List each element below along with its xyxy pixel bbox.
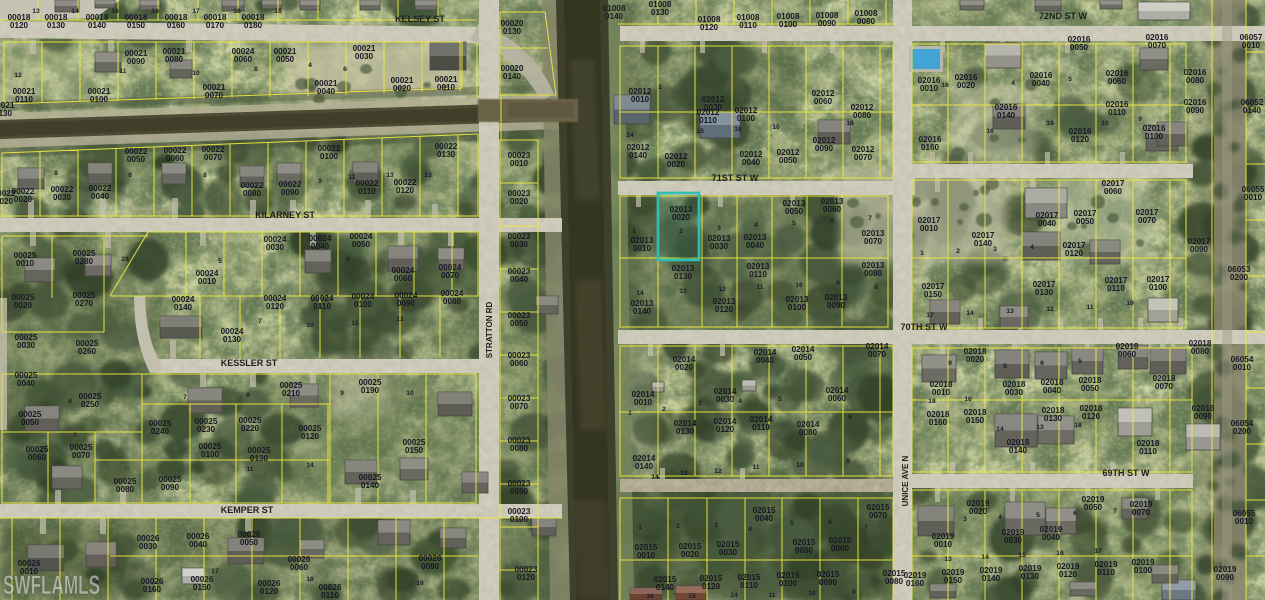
svg-text:020160160: 020160160 [919,135,942,152]
svg-text:020150100: 020150100 [777,571,800,588]
svg-text:020140110: 020140110 [750,415,773,432]
svg-text:10: 10 [772,124,780,131]
svg-text:1: 1 [638,524,642,531]
svg-text:020130010: 020130010 [631,236,654,253]
svg-text:000250120: 000250120 [299,424,322,441]
svg-text:020120100: 020120100 [735,106,758,123]
svg-text:8: 8 [1003,363,1007,370]
svg-text:000250130: 000250130 [248,446,271,463]
svg-text:020170130: 020170130 [1033,280,1056,297]
svg-text:000260160: 000260160 [141,577,164,594]
svg-text:12: 12 [718,286,726,293]
svg-text:020180050: 020180050 [1079,376,1102,393]
svg-text:2: 2 [956,248,960,255]
svg-text:000210050: 000210050 [274,47,297,64]
svg-text:18: 18 [1046,120,1054,127]
svg-text:2: 2 [662,406,666,413]
svg-text:000240060: 000240060 [392,266,415,283]
svg-text:020130060: 020130060 [821,197,844,214]
svg-text:020160100: 020160100 [1143,124,1166,141]
svg-text:71ST ST W: 71ST ST W [712,173,759,183]
svg-text:000250050: 000250050 [19,410,42,427]
svg-text:7: 7 [868,215,872,222]
svg-text:8: 8 [254,66,258,73]
svg-text:14: 14 [996,426,1004,433]
svg-text:020190050: 020190050 [1082,495,1105,512]
svg-text:5: 5 [1078,358,1082,365]
svg-text:000230060: 000230060 [508,351,531,368]
svg-text:000220050: 000220050 [125,147,148,164]
svg-text:020130110: 020130110 [747,262,770,279]
svg-text:020190110: 020190110 [1095,560,1118,577]
svg-text:020190040: 020190040 [1040,525,1063,542]
svg-text:18: 18 [416,580,424,587]
svg-text:020190030: 020190030 [1002,528,1025,545]
svg-text:020140120: 020140120 [714,417,737,434]
svg-text:020170010: 020170010 [918,216,941,233]
svg-text:13: 13 [1006,308,1014,315]
svg-text:000220090: 000220090 [279,180,302,197]
svg-text:020180040: 020180040 [1041,378,1064,395]
svg-text:000210010: 000210010 [435,75,458,92]
svg-text:72ND ST W: 72ND ST W [1039,11,1088,21]
svg-text:000230020: 000230020 [508,189,531,206]
svg-text:15: 15 [696,128,704,135]
svg-text:18: 18 [928,398,936,405]
svg-text:020190020: 020190020 [967,499,990,516]
svg-text:000220110: 000220110 [356,179,379,196]
svg-text:020170050: 020170050 [1074,209,1097,226]
svg-text:10: 10 [796,462,804,469]
svg-text:020140130: 020140130 [674,419,697,436]
svg-text:13: 13 [424,172,432,179]
svg-text:000220080: 000220080 [241,181,264,198]
svg-text:9: 9 [836,280,840,287]
svg-text:11: 11 [768,592,775,599]
svg-text:020180020: 020180020 [964,347,987,364]
svg-text:KILARNEY ST: KILARNEY ST [255,210,315,220]
svg-text:9: 9 [1138,116,1142,123]
svg-text:UNICE AVE N: UNICE AVE N [901,455,910,506]
svg-text:000250230: 000250230 [195,417,218,434]
svg-text:000230030: 000230030 [508,232,531,249]
svg-text:13: 13 [679,288,687,295]
svg-text:12: 12 [1046,306,1054,313]
svg-text:000230090: 000230090 [508,479,531,496]
svg-text:11: 11 [351,320,358,327]
svg-text:020150080: 020150080 [883,569,906,586]
svg-text:000180140: 000180140 [86,13,109,30]
svg-text:000250270: 000250270 [73,291,96,308]
svg-text:020120020: 020120020 [665,152,688,169]
svg-text:9: 9 [948,360,952,367]
svg-text:020180010: 020180010 [930,380,953,397]
svg-text:020140060: 020140060 [826,386,849,403]
svg-text:16: 16 [795,282,803,289]
svg-text:020140010: 020140010 [632,390,655,407]
svg-text:18: 18 [734,126,742,133]
svg-text:11: 11 [756,284,763,291]
svg-text:060570010: 060570010 [1240,33,1263,50]
svg-text:000210110: 000210110 [13,87,36,104]
svg-text:6: 6 [1040,360,1044,367]
svg-text:020180120: 020180120 [1080,404,1103,421]
svg-text:000210070: 000210070 [203,83,226,100]
svg-text:000240140: 000240140 [172,295,195,312]
svg-text:000220130: 000220130 [435,142,458,159]
svg-text:020190100: 020190100 [1132,558,1155,575]
svg-text:000220030: 000220030 [51,185,74,202]
svg-text:STRATTON RD: STRATTON RD [485,301,494,358]
svg-text:4: 4 [998,514,1002,521]
svg-text:000180170: 000180170 [204,13,227,30]
svg-text:020190010: 020190010 [932,532,955,549]
svg-text:020170140: 020170140 [972,231,995,248]
svg-text:000260030: 000260030 [137,534,160,551]
svg-text:000240030: 000240030 [264,235,287,252]
svg-text:000240090: 000240090 [395,291,418,308]
svg-text:000240120: 000240120 [264,294,287,311]
svg-text:14: 14 [651,474,659,481]
svg-text:020180060: 020180060 [1116,342,1139,359]
svg-text:020190140: 020190140 [980,566,1003,583]
svg-text:10: 10 [808,590,816,597]
svg-text:020120040: 020120040 [740,150,763,167]
svg-text:000180160: 000180160 [165,13,188,30]
svg-text:020150140: 020150140 [654,575,677,592]
svg-text:KEMPER ST: KEMPER ST [221,505,274,515]
svg-text:020170090: 020170090 [1188,237,1211,254]
svg-text:2: 2 [679,228,683,235]
svg-text:000250090: 000250090 [159,475,182,492]
svg-text:000250010: 000250010 [14,251,37,268]
svg-text:6: 6 [343,66,347,73]
svg-text:000240100: 000240100 [352,292,375,309]
svg-text:020180090: 020180090 [1192,404,1215,421]
svg-text:11: 11 [246,466,253,473]
svg-text:8: 8 [874,284,878,291]
svg-text:000260050: 000260050 [238,530,261,547]
svg-text:5: 5 [1068,76,1072,83]
svg-text:020130020: 020130020 [670,205,693,222]
svg-text:000250250: 000250250 [79,392,102,409]
svg-text:8: 8 [203,172,207,179]
svg-text:020150010: 020150010 [635,543,658,560]
svg-text:020170100: 020170100 [1147,275,1170,292]
svg-text:020150070: 020150070 [867,503,890,520]
svg-text:060540010: 060540010 [1231,355,1254,372]
svg-text:13: 13 [680,470,688,477]
svg-text:14: 14 [306,462,314,469]
svg-text:020170150: 020170150 [922,282,945,299]
svg-text:8: 8 [246,392,250,399]
svg-text:020150120: 020150120 [700,574,723,591]
svg-text:020120110: 020120110 [697,108,720,125]
svg-text:020120080: 020120080 [851,103,874,120]
svg-text:000250060: 000250060 [26,445,49,462]
svg-text:010080140: 010080140 [603,4,626,21]
svg-text:000250220: 000250220 [239,416,262,433]
svg-text:000240040: 000240040 [309,234,332,251]
svg-text:000220060: 000220060 [164,146,187,163]
svg-text:020160110: 020160110 [1106,100,1129,117]
svg-text:020150030: 020150030 [717,540,740,557]
svg-text:1: 1 [920,250,924,257]
svg-text:000250260: 000250260 [76,339,99,356]
svg-text:020130040: 020130040 [744,233,767,250]
svg-text:000230050: 000230050 [508,311,531,328]
svg-text:020170070: 020170070 [1136,208,1159,225]
svg-text:16: 16 [986,128,994,135]
svg-text:10: 10 [1126,300,1134,307]
svg-text:8: 8 [128,172,132,179]
svg-text:13: 13 [32,8,40,15]
svg-text:8: 8 [346,256,350,263]
svg-text:SWFLAMLS: SWFLAMLS [3,570,100,600]
svg-text:020180140: 020180140 [1007,438,1030,455]
svg-text:KESSLER ST: KESSLER ST [221,358,278,368]
svg-text:000210040: 000210040 [315,79,338,96]
svg-text:010080110: 010080110 [737,13,760,30]
svg-text:000260120: 000260120 [258,579,281,596]
svg-text:4: 4 [748,526,752,533]
svg-text:010080080: 010080080 [855,9,878,26]
svg-text:16: 16 [646,593,654,600]
svg-text:10: 10 [406,390,414,397]
svg-text:020150020: 020150020 [679,542,702,559]
svg-text:14: 14 [636,290,644,297]
svg-text:4: 4 [68,398,72,405]
svg-text:8: 8 [54,170,58,177]
svg-text:060540200: 060540200 [1231,419,1254,436]
svg-text:16: 16 [1056,550,1064,557]
svg-text:7: 7 [73,432,77,439]
svg-text:020160010: 020160010 [918,76,941,93]
svg-text:000230040: 000230040 [508,267,531,284]
svg-text:060550010: 060550010 [1233,509,1256,526]
svg-text:11: 11 [119,68,126,75]
svg-text:020160040: 020160040 [1030,71,1053,88]
svg-text:020130030: 020130030 [708,234,731,251]
svg-text:000240130: 000240130 [221,327,244,344]
svg-text:16: 16 [151,8,159,15]
svg-text:4: 4 [738,398,742,405]
svg-text:8: 8 [846,458,850,465]
svg-text:17: 17 [192,8,200,15]
svg-text:2: 2 [658,84,662,91]
svg-text:69TH ST W: 69TH ST W [1102,468,1150,478]
svg-text:6: 6 [828,519,832,526]
svg-text:020130070: 020130070 [862,229,885,246]
svg-text:020140040: 020140040 [754,348,777,365]
svg-text:5: 5 [218,258,222,265]
svg-text:000250150: 000250150 [403,438,426,455]
svg-text:9: 9 [340,390,344,397]
svg-text:7: 7 [1068,242,1072,249]
svg-text:020190130: 020190130 [1019,564,1042,581]
svg-text:7: 7 [1113,508,1117,515]
svg-text:000240060: 000240060 [232,47,255,64]
svg-text:000230100: 000230100 [508,507,531,524]
svg-text:020170120: 020170120 [1063,241,1086,258]
svg-text:000250190: 000250190 [359,378,382,395]
svg-text:020190150: 020190150 [942,568,965,585]
svg-text:12: 12 [396,316,404,323]
svg-text:020120090: 020120090 [813,136,836,153]
svg-text:15: 15 [1018,552,1026,559]
svg-text:000260080: 000260080 [419,554,442,571]
svg-text:6: 6 [848,414,852,421]
svg-text:13: 13 [1036,424,1044,431]
svg-text:000210030: 000210030 [353,44,376,61]
svg-text:000210080: 000210080 [163,47,186,64]
svg-text:70TH ST W: 70TH ST W [900,322,948,332]
svg-text:000250280: 000250280 [73,249,96,266]
svg-text:020140140: 020140140 [633,454,656,471]
svg-text:020160090: 020160090 [1184,98,1207,115]
svg-text:000250040: 000250040 [15,371,38,388]
svg-text:060550010: 060550010 [1242,185,1265,202]
svg-text:000230120: 000230120 [515,565,538,582]
svg-text:020160060: 020160060 [1106,69,1129,86]
svg-text:020130120: 020130120 [713,297,736,314]
svg-text:6: 6 [830,218,834,225]
svg-text:18: 18 [306,576,314,583]
svg-text:020150060: 020150060 [829,536,852,553]
svg-text:020150040: 020150040 [753,506,776,523]
svg-text:000180120: 000180120 [8,13,31,30]
svg-text:2: 2 [676,523,680,530]
svg-text:3: 3 [714,522,718,529]
svg-text:13: 13 [944,556,952,563]
svg-text:000200140: 000200140 [501,64,524,81]
svg-text:000210020: 000210020 [391,76,414,93]
svg-text:000240010: 000240010 [196,269,219,286]
svg-text:000210100: 000210100 [88,87,111,104]
svg-text:020140020: 020140020 [673,355,696,372]
svg-text:020160080: 020160080 [1184,68,1207,85]
svg-text:5: 5 [778,396,782,403]
svg-text:020120050: 020120050 [777,148,800,165]
svg-text:020160050: 020160050 [1068,35,1091,52]
svg-text:4: 4 [308,62,312,69]
svg-text:7: 7 [864,524,868,531]
svg-text:14: 14 [730,592,738,599]
svg-text:020140050: 020140050 [792,345,815,362]
svg-text:000250020: 000250020 [12,293,35,310]
svg-text:020150090: 020150090 [817,570,840,587]
svg-text:020180080: 020180080 [1189,339,1212,356]
svg-text:000210090: 000210090 [125,49,148,66]
svg-text:11: 11 [348,174,355,181]
svg-text:000240070: 000240070 [439,263,462,280]
svg-text:13: 13 [386,172,394,179]
svg-text:4: 4 [1011,80,1015,87]
svg-text:15: 15 [688,593,696,600]
svg-text:16: 16 [111,8,119,15]
svg-text:3: 3 [698,400,702,407]
svg-text:18: 18 [274,8,282,15]
svg-text:1: 1 [628,410,632,417]
svg-text:020130080: 020130080 [862,261,885,278]
svg-text:7: 7 [183,394,187,401]
svg-text:14: 14 [966,310,974,317]
svg-text:000230010: 000230010 [508,151,531,168]
svg-text:16: 16 [964,396,972,403]
svg-text:000180150: 000180150 [125,13,148,30]
svg-text:010080120: 010080120 [698,15,721,32]
svg-text:000220040: 000220040 [89,184,112,201]
svg-text:000220120: 000220120 [394,178,417,195]
svg-text:020180150: 020180150 [964,408,987,425]
svg-text:000180130: 000180130 [45,13,68,30]
svg-text:12: 12 [714,468,722,475]
svg-text:000240050: 000240050 [350,232,373,249]
svg-text:000250240: 000250240 [149,419,172,436]
svg-text:020150110: 020150110 [738,573,761,590]
svg-text:020160120: 020160120 [1069,127,1092,144]
svg-text:020160020: 020160020 [955,73,978,90]
svg-text:020130100: 020130100 [786,295,809,312]
svg-text:9: 9 [318,178,322,185]
svg-text:010080100: 010080100 [777,12,800,29]
svg-text:020120010: 020120010 [629,87,652,104]
svg-text:020160070: 020160070 [1146,33,1169,50]
svg-text:000230070: 000230070 [508,394,531,411]
svg-text:3: 3 [963,516,967,523]
svg-text:5: 5 [790,520,794,527]
svg-text:000240110: 000240110 [311,294,334,311]
svg-text:020190160: 020190160 [904,571,927,588]
svg-text:020130130: 020130130 [672,264,695,281]
svg-text:16: 16 [941,82,949,89]
svg-text:000240080: 000240080 [441,289,464,306]
svg-text:12: 12 [14,72,22,79]
svg-text:000220100: 000220100 [318,144,341,161]
svg-text:020160140: 020160140 [995,103,1018,120]
svg-text:020130050: 020130050 [783,199,806,216]
svg-text:020180160: 020180160 [927,410,950,427]
svg-text:020190090: 020190090 [1214,565,1237,582]
svg-text:10: 10 [192,70,200,77]
svg-text:000260060: 000260060 [288,555,311,572]
svg-text:000230080: 000230080 [508,436,531,453]
svg-text:000220070: 000220070 [202,145,225,162]
svg-text:000250140: 000250140 [359,473,382,490]
svg-text:17: 17 [1094,548,1102,555]
svg-text:16: 16 [846,120,854,127]
svg-text:14: 14 [981,554,989,561]
svg-text:000260110: 000260110 [319,583,342,600]
svg-text:3: 3 [717,225,721,232]
svg-text:020120060: 020120060 [812,89,835,106]
svg-text:11: 11 [1086,304,1093,311]
svg-text:6: 6 [1073,510,1077,517]
svg-text:3: 3 [993,246,997,253]
svg-text:020180130: 020180130 [1042,406,1065,423]
svg-text:000250070: 000250070 [70,443,93,460]
svg-text:000200130: 000200130 [501,19,524,36]
svg-text:7: 7 [258,318,262,325]
svg-text:020130140: 020130140 [631,299,654,316]
svg-text:060530200: 060530200 [1228,265,1251,282]
svg-text:000260040: 000260040 [187,532,210,549]
svg-text:000260150: 000260150 [191,575,214,592]
svg-text:5: 5 [1036,512,1040,519]
svg-text:000250030: 000250030 [15,333,38,350]
svg-text:000180180: 000180180 [242,13,265,30]
svg-text:020170040: 020170040 [1036,211,1059,228]
